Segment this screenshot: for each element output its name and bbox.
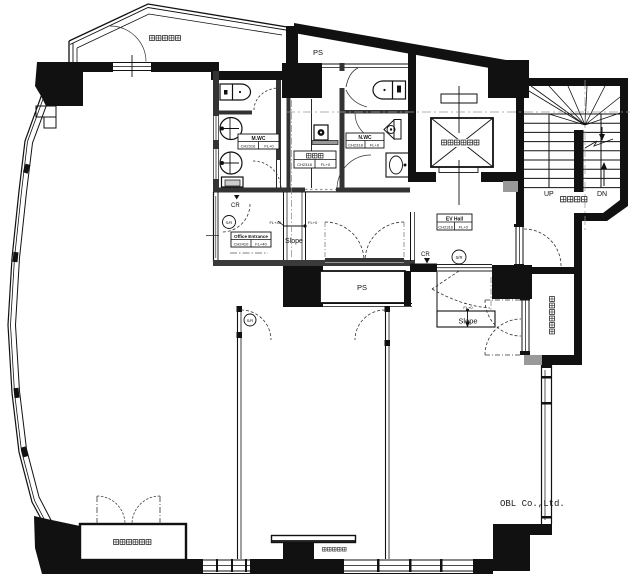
svg-text:FL+0: FL+0 — [370, 143, 380, 148]
svg-text:Slope: Slope — [285, 238, 303, 245]
svg-text:EV Hall: EV Hall — [446, 217, 464, 223]
svg-text:PS: PS — [357, 283, 367, 292]
svg-text:CH2316: CH2316 — [438, 225, 453, 230]
svg-text:CR: CR — [421, 252, 430, 258]
svg-text:FL+40: FL+40 — [255, 242, 267, 247]
svg-text:N.WC: N.WC — [358, 135, 372, 141]
svg-text:CH2318: CH2318 — [297, 162, 312, 167]
svg-text:CR: CR — [231, 203, 240, 209]
svg-text:M.WC: M.WC — [252, 136, 266, 142]
svg-text:CH2316: CH2316 — [241, 144, 256, 149]
svg-text:FL+0: FL+0 — [459, 225, 469, 230]
svg-text:OBL Co.,Ltd.: OBL Co.,Ltd. — [500, 499, 565, 509]
svg-text:FL+0: FL+0 — [321, 162, 331, 167]
svg-text:UP: UP — [544, 191, 554, 198]
svg-text:FL+0: FL+0 — [264, 144, 274, 149]
svg-text:S/R: S/R — [456, 255, 463, 260]
svg-text:FL+0: FL+0 — [308, 220, 318, 225]
svg-text:CH2410: CH2410 — [234, 242, 249, 247]
svg-text:S/R: S/R — [226, 220, 233, 225]
svg-text:DN: DN — [597, 191, 607, 198]
svg-text:CH2318: CH2318 — [348, 143, 363, 148]
svg-text:PS: PS — [313, 48, 323, 57]
svg-text:Office Entrance: Office Entrance — [234, 234, 268, 239]
svg-text:S/R: S/R — [247, 318, 254, 323]
